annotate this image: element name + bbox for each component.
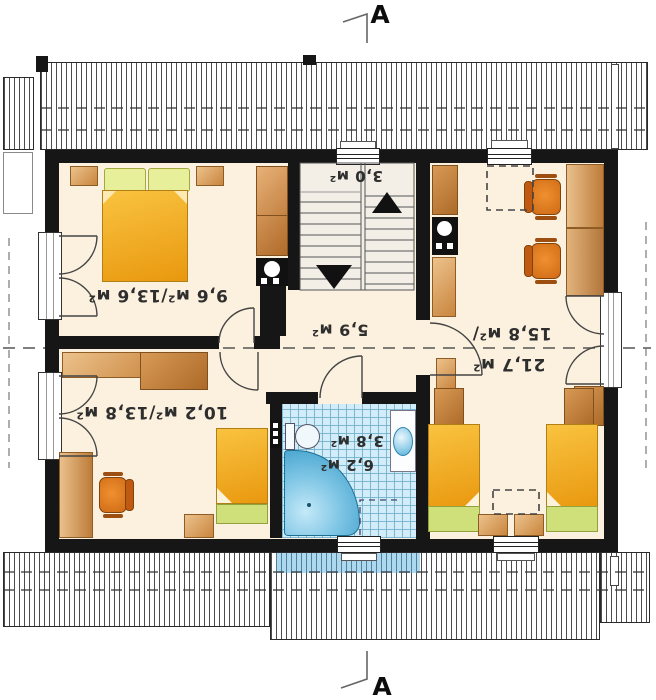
double-bed [102,190,188,282]
window-bathroom [337,536,381,553]
roof-window-gap-top [611,64,619,149]
duvet-fold [464,492,479,507]
pillow [148,168,190,192]
toilet-bowl [295,424,320,449]
desk-long [566,164,604,228]
office-chair [524,174,568,220]
bathroom-vent-icon [270,420,282,448]
room-label-living-2: 21,7 м² [473,354,546,374]
chimney-flue-icon [256,258,288,286]
roof-hatch-bottom-right [600,552,650,623]
wall-living-west-upper [416,163,430,320]
stove-flue-icon [432,217,458,255]
desk [59,452,93,538]
office-chair [92,472,134,518]
single-bed [546,424,598,508]
kitchen-cabinet [432,257,456,317]
kitchen-cabinet [432,165,458,215]
wall-hall-south-a [266,392,318,404]
wall-left-2 [45,318,59,375]
section-marker-line-bottom [341,651,367,688]
room-label-closet: 3,0 м² [329,167,383,185]
terrace-left [3,152,33,214]
wardrobe-bedroom [256,166,288,256]
wall-left-1 [45,150,59,235]
floor-plan: 9,6 м²/13,6 м² 10,2 м²/13,8 м² 5,9 м² 3,… [0,0,656,700]
roof-hatch-top [40,62,648,150]
section-marker-line-top [343,14,367,43]
nightstand [514,514,544,536]
toilet [285,423,295,450]
pillow [104,168,146,192]
bed-pillow-headrest [434,388,464,426]
wall-top [45,150,618,163]
roof-hatch-top-left-strip [3,77,34,150]
bed-pillow-headrest [564,388,594,426]
nightstand [184,514,214,538]
wardrobe [140,352,208,390]
single-bed [216,428,268,504]
wall-bedroom-east [260,284,286,336]
wall-stair-west [288,163,300,290]
window-top-2 [487,148,532,165]
section-marker-label-top: A [370,0,389,29]
wall-stub-hall [254,336,280,349]
single-bed [428,424,480,508]
wall-right-2 [604,385,618,552]
bed-foot-blanket [428,506,480,532]
nightstand [70,166,98,186]
bed-foot-blanket [546,506,598,532]
chimney-block-left [36,56,48,72]
section-marker-label-bottom: A [372,672,391,700]
window-sill-bottom-1 [341,553,377,561]
duvet-fold [547,492,562,507]
duvet-fold [217,488,232,503]
roof-window-gap-bottom [610,556,619,586]
desk-long [566,228,604,296]
office-chair [524,238,568,284]
room-label-bedroom2: 10,2 м²/13,8 м² [76,402,228,422]
nightstand [478,514,508,536]
chimney-block-mid [303,55,316,65]
window-bedroom-south [493,536,539,553]
roof-hatch-bottom-left [3,552,270,627]
balcony-door-left-2 [38,372,62,460]
duvet-fold [103,191,116,204]
room-label-bedroom1: 9,6 м²/13,6 м² [88,285,228,305]
room-label-bathroom-2: 6,2 м² [320,456,374,474]
washbasin [393,427,413,456]
balcony-door-right [600,292,622,388]
duvet-fold [174,191,187,204]
balcony-door-left-1 [38,232,62,320]
cabinet [436,358,456,390]
wall-bedroom-south [59,336,219,349]
room-label-living-1: 15,8 м²/ [472,323,551,343]
window-sill-bottom-2 [497,553,535,561]
wall-right-1 [604,150,618,296]
room-label-bathroom-1: 3,8 м² [330,432,384,450]
wall-left-3 [45,458,59,552]
room-label-hall: 5,9 м² [312,321,369,340]
window-top-1 [336,148,380,165]
nightstand [196,166,224,186]
bed-foot-blanket [216,504,268,524]
